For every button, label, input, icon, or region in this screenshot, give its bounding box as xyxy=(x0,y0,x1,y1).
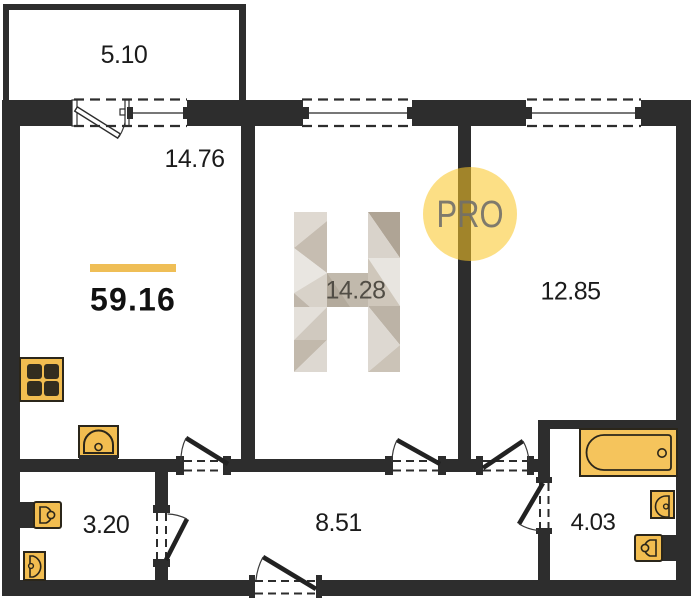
svg-text:PRO: PRO xyxy=(437,194,504,236)
svg-text:14.28: 14.28 xyxy=(325,277,385,305)
svg-text:12.85: 12.85 xyxy=(540,278,600,306)
svg-text:8.51: 8.51 xyxy=(315,509,362,537)
svg-text:59.16: 59.16 xyxy=(90,282,176,318)
svg-text:5.10: 5.10 xyxy=(101,41,148,69)
svg-text:3.20: 3.20 xyxy=(83,511,130,539)
svg-text:4.03: 4.03 xyxy=(571,509,616,536)
svg-text:14.76: 14.76 xyxy=(164,145,224,173)
